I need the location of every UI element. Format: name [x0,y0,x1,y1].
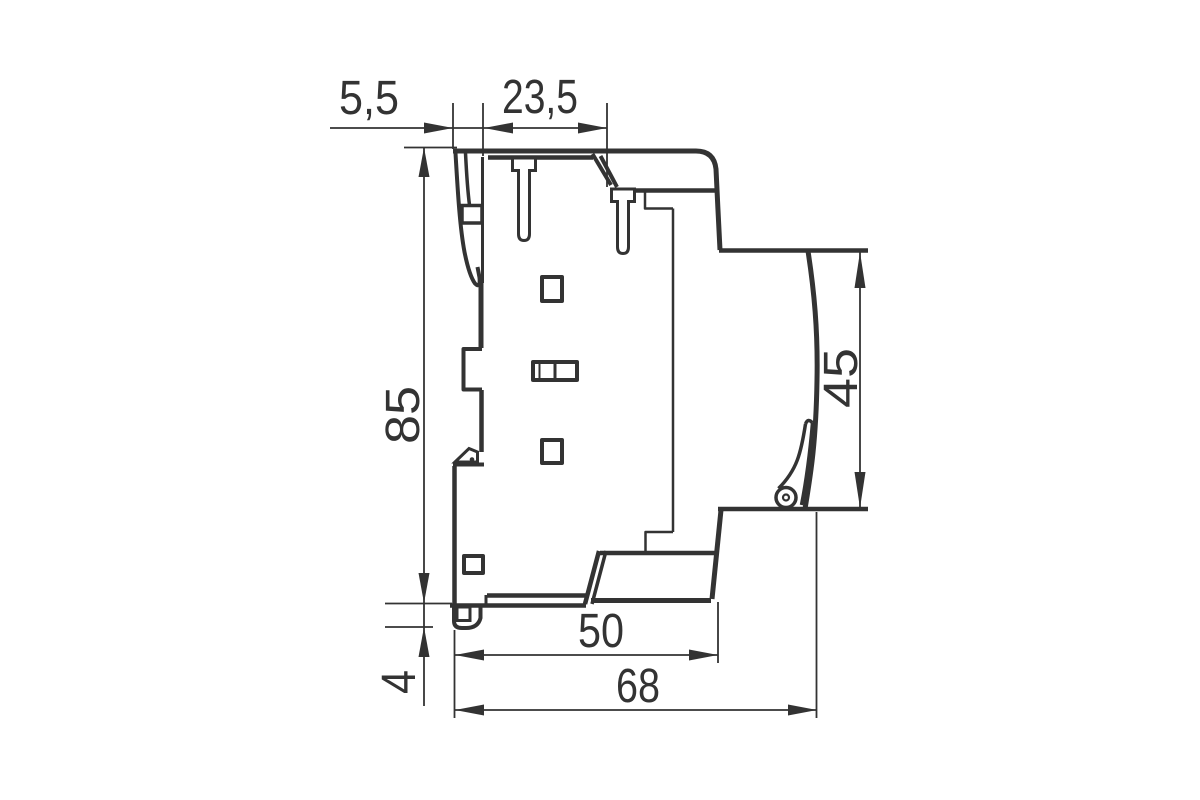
dim-label-4: 4 [373,670,426,694]
head-terminal-area [488,154,715,553]
arrow-right-23-5 [578,123,607,134]
arrow-left-68 [455,705,484,716]
arrow-down-45 [855,472,866,508]
dimension-left: 85 4 [373,147,457,706]
upper-claw-inner-edge [466,153,470,205]
arrow-left-23-5 [484,123,513,134]
lever-left-edge [779,424,806,489]
side-mark-square-1 [542,277,562,301]
side-mark-square-3 [464,556,483,573]
arrow-right-68 [788,705,817,716]
dim-label-50: 50 [578,605,624,658]
terminal-screw-1 [513,158,536,241]
top-edge [453,151,720,250]
side-mark-square-2 [542,440,562,463]
dim-label-85: 85 [377,386,430,444]
dimension-drawing: 5,5 23,5 85 4 45 50 68 [0,0,1200,800]
arrow-down-85 [419,573,430,603]
arrow-up-45 [855,252,866,288]
inner-stair [646,532,674,553]
arrow-left-50 [455,650,484,661]
dimension-right: 45 [815,252,868,508]
upper-claw-hole [462,206,482,224]
clip-spring-pin [470,457,475,462]
dimension-top: 5,5 23,5 [330,71,607,187]
dim-label-68: 68 [616,660,660,713]
device-outline [450,151,868,606]
dim-label-5-5: 5,5 [339,72,399,125]
terminal-screw-2 [612,189,635,254]
arrow-right-5-5 [424,123,453,134]
arrow-up-85 [419,148,430,178]
rail-notch [464,349,483,390]
lever-hinge-circle [776,488,796,508]
head-step [645,192,673,209]
dimension-bottom: 50 68 [455,512,818,718]
rail-foot-notch [457,607,470,621]
dim-label-45: 45 [815,348,868,408]
arrow-up-4 [419,627,430,657]
dim-label-23-5: 23,5 [502,71,578,124]
dimension-drawing-canvas: 5,5 23,5 85 4 45 50 68 [0,0,1200,800]
cover-left-diagonal-outer [585,551,599,604]
arrow-right-50 [689,650,718,661]
